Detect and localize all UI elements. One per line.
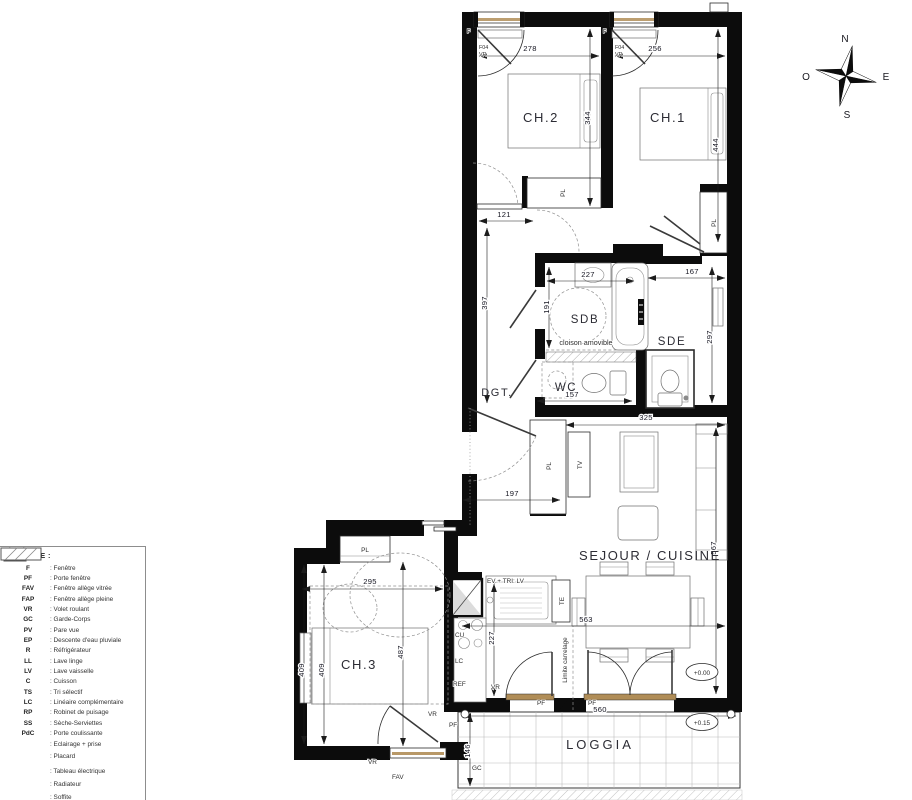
ch3-loggia-door-swing <box>378 706 390 744</box>
floor-plan-page: 278 256 344 444 121 397 227 191 167 297 … <box>0 0 912 800</box>
dim-sejour-top: 325 <box>639 413 653 422</box>
dim-sejour-width: 563 <box>579 615 593 624</box>
dim-ch3-width: 295 <box>363 577 377 586</box>
label-vr-ch3-corner: VR <box>428 711 437 718</box>
label-fav: FAV <box>392 774 404 781</box>
sde-radiator <box>713 288 723 326</box>
ch1-door-leaf <box>664 216 700 244</box>
legend-row: FAP: Fenêtre allège pleine <box>6 594 145 604</box>
label-pl-ch2: PL <box>560 189 567 197</box>
label-pf-ch3: PF <box>449 722 457 729</box>
wc-toilet <box>582 371 626 395</box>
window-fav-ch3 <box>390 748 446 758</box>
room-label-loggia: LOGGIA <box>566 737 634 752</box>
level-sejour: +0.00 <box>694 670 711 677</box>
label-ref: REF <box>453 681 466 688</box>
legend-row: FAV: Fenêtre allège vitrée <box>6 584 145 594</box>
label-cloison-amovible: cloison amovible <box>559 338 612 347</box>
label-pl-entry: PL <box>546 462 553 470</box>
sejour-rug <box>620 432 658 492</box>
pf-single-swing <box>506 652 552 698</box>
room-label-ch3: CH.3 <box>341 657 377 672</box>
dim-entry-width: 197 <box>505 489 519 498</box>
compass-rose: N E S O <box>802 34 890 121</box>
dim-ch1-height: 444 <box>711 138 720 152</box>
legend-panel: LEGENDE : F: Fenêtre PF: Porte fenêtre F… <box>0 546 146 800</box>
sdb-door-leaf <box>510 290 536 328</box>
ch2-door-swing <box>473 163 518 208</box>
legend-row: TS: Tri sélectif <box>6 687 145 697</box>
label-vr-kitchen: VR <box>491 684 500 691</box>
label-limite-carrelage: Limite carrelage <box>562 637 569 683</box>
dim-kitchen-height: 227 <box>487 631 496 645</box>
dim-dgt-height: 397 <box>480 296 489 310</box>
label-vr-fav: VR <box>368 759 377 766</box>
legend-symbol-row: : Radiateur <box>6 779 145 789</box>
room-label-sde: SDE <box>658 336 686 348</box>
ep-circle-left <box>461 710 469 718</box>
dim-ch2-height: 344 <box>583 111 592 125</box>
label-f04-ch1: F04 <box>615 45 624 51</box>
legend-row: EP: Descente d'eau pluviale <box>6 635 145 645</box>
dim-hall-width: 121 <box>497 210 511 219</box>
label-cu: CU <box>455 632 465 639</box>
label-vr-ch2: VR <box>479 52 487 58</box>
dim-sde-height: 297 <box>705 330 714 344</box>
window-ch2 <box>474 12 524 27</box>
room-label-sdb: SDB <box>571 314 599 326</box>
room-label-ch2: CH.2 <box>523 110 559 125</box>
sofa <box>696 424 727 560</box>
dim-sdb-height: 191 <box>542 300 551 314</box>
threshold-pf-single <box>506 694 554 700</box>
legend-row: GC: Garde-Corps <box>6 615 145 625</box>
soffite-strip <box>546 352 636 362</box>
legend-row: LL: Lave linge <box>6 656 145 666</box>
legend-row: LC: Linéaire complémentaire <box>6 697 145 707</box>
room-label-sejour: SEJOUR / CUISINE <box>579 548 721 563</box>
label-gc: GC <box>472 765 482 772</box>
legend-row: C: Cuisson <box>6 677 145 687</box>
room-label-dgt: DGT. <box>481 387 512 399</box>
compass-south: S <box>844 110 851 121</box>
dim-ch3-height: 487 <box>396 645 405 659</box>
compass-west: O <box>802 72 810 83</box>
label-ev-tri-lv: EV + TRI: LV <box>487 578 525 585</box>
compass-east: E <box>883 72 890 83</box>
ep-circle-right <box>727 710 735 718</box>
legend-row: F: Fenêtre <box>6 563 145 573</box>
towel-radiator <box>638 299 644 325</box>
hall-door-swing <box>537 210 579 252</box>
dim-sdb-width: 227 <box>581 270 595 279</box>
legend-row: R: Réfrigérateur <box>6 646 145 656</box>
label-te: TE <box>559 597 566 605</box>
label-vr-ch1: VR <box>615 52 623 58</box>
label-pl-ch1: PL <box>711 219 718 227</box>
duct-shaft <box>452 579 482 616</box>
label-f04-ch2: F04 <box>479 45 488 51</box>
dim-ch1-width: 256 <box>648 44 662 53</box>
ep-box-top <box>710 3 728 12</box>
legend-row: PdC: Porte coulissante <box>6 729 145 739</box>
facade-hatch-band <box>452 790 742 800</box>
coffee-table <box>618 506 658 540</box>
label-pf-2: PF <box>588 700 596 707</box>
legend-symbol-row: PL : Placard <box>6 749 145 764</box>
room-label-wc: WC <box>555 382 577 394</box>
dim-ch3-height-b: 409 <box>317 663 326 677</box>
wc-door-leaf <box>510 360 536 398</box>
room-label-ch1: CH.1 <box>650 110 686 125</box>
legend-symbol-row: : Tableau électrique <box>6 764 145 779</box>
compass-north: N <box>841 34 848 45</box>
dim-sde-width: 167 <box>685 267 699 276</box>
legend-row: PF: Porte fenêtre <box>6 573 145 583</box>
legend-row: LV: Lave vaisselle <box>6 666 145 676</box>
dining-table <box>572 562 704 662</box>
label-pf-1: PF <box>537 700 545 707</box>
dim-loggia-height: 146 <box>463 744 472 758</box>
legend-row: SS: Sèche-Serviettes <box>6 718 145 728</box>
window-ch1 <box>610 12 658 27</box>
entry-door-leaf <box>468 408 536 436</box>
label-lc: LC <box>455 658 464 665</box>
dim-ch3-height-a: 409 <box>297 663 306 677</box>
level-loggia: +0.15 <box>694 720 711 727</box>
legend-row: PV: Pare vue <box>6 625 145 635</box>
ch3-clearance-dashed-1 <box>350 553 450 637</box>
label-tv: TV <box>577 460 584 469</box>
legend-row: VR: Volet roulant <box>6 604 145 614</box>
legend-symbol-row: : Eclairage + prise <box>6 739 145 749</box>
legend-symbol-row: : Soffite <box>6 790 145 800</box>
entry-door-swing <box>468 436 536 481</box>
label-pl-ch3: PL <box>361 547 369 554</box>
dim-ch2-width: 278 <box>523 44 537 53</box>
legend-row: RP: Robinet de puisage <box>6 708 145 718</box>
kitchen <box>452 576 573 710</box>
